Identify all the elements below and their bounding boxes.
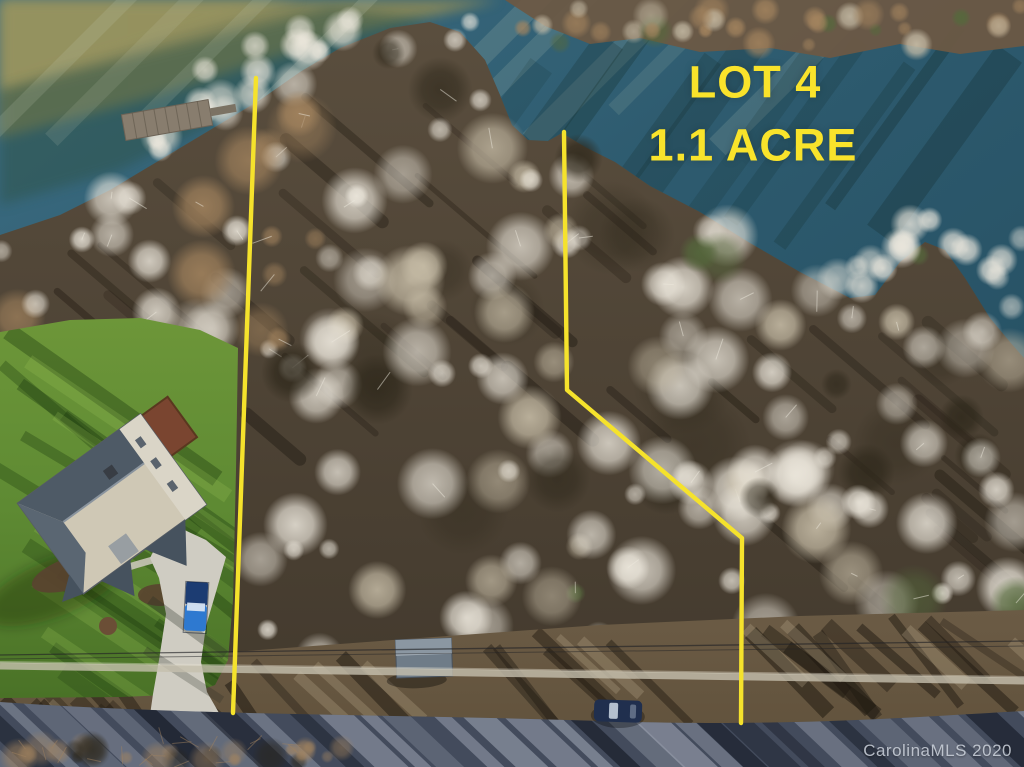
aerial-photo xyxy=(0,0,1024,767)
acreage-label: 1.1 ACRE xyxy=(649,123,858,168)
shrub xyxy=(99,617,117,635)
lot-label: LOT 4 xyxy=(689,60,822,105)
listing-photo: LOT 4 1.1 ACRE CarolinaMLS 2020 xyxy=(0,0,1024,767)
watermark: CarolinaMLS 2020 xyxy=(863,741,1012,761)
pickup-truck xyxy=(183,581,209,633)
